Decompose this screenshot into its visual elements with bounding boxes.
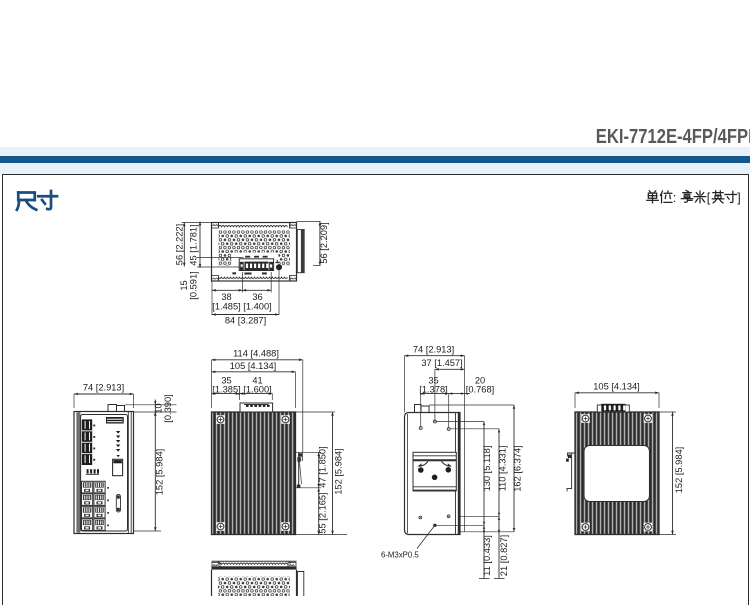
svg-text:[1.600]: [1.600]	[243, 384, 271, 394]
svg-text:[1.378]: [1.378]	[419, 384, 447, 394]
svg-text:37 [1.457]: 37 [1.457]	[421, 358, 462, 368]
svg-text:45 [1.781]: 45 [1.781]	[189, 224, 199, 265]
svg-text::: :	[673, 191, 676, 205]
svg-text:114 [4.488]: 114 [4.488]	[233, 349, 279, 359]
svg-text:55 [2.165]: 55 [2.165]	[317, 492, 327, 533]
svg-text:[1.400]: [1.400]	[243, 302, 271, 312]
svg-text:]: ]	[737, 191, 740, 205]
svg-text:74 [2.913]: 74 [2.913]	[83, 382, 124, 392]
svg-text:[1.385]: [1.385]	[212, 384, 240, 394]
svg-text:152 [5.984]: 152 [5.984]	[155, 449, 165, 496]
svg-text:105 [4.134]: 105 [4.134]	[230, 361, 277, 371]
svg-text:[0.591]: [0.591]	[189, 271, 199, 299]
svg-text:6-M3xP0.5: 6-M3xP0.5	[381, 551, 419, 560]
svg-text:152 [5.984]: 152 [5.984]	[334, 448, 344, 495]
svg-text:84 [3.287]: 84 [3.287]	[225, 316, 266, 326]
svg-text:[0.768]: [0.768]	[466, 384, 494, 394]
svg-text:152 [5.984]: 152 [5.984]	[674, 447, 684, 494]
svg-text:11 [0.433]: 11 [0.433]	[482, 535, 492, 576]
svg-text:74 [2.913]: 74 [2.913]	[413, 344, 454, 354]
svg-text:15: 15	[179, 280, 189, 290]
svg-text:56 [2.209]: 56 [2.209]	[319, 222, 329, 263]
svg-text:56 [2.222]: 56 [2.222]	[175, 224, 185, 265]
svg-text:[1.485]: [1.485]	[212, 302, 240, 312]
svg-text:21 [0.827]: 21 [0.827]	[499, 535, 509, 576]
svg-text:105 [4.134]: 105 [4.134]	[593, 381, 640, 391]
svg-text:47 [1.850]: 47 [1.850]	[317, 446, 327, 487]
svg-text:162 [6.374]: 162 [6.374]	[512, 445, 522, 492]
svg-text:130 [5.118]: 130 [5.118]	[482, 446, 492, 492]
svg-text:[0.390]: [0.390]	[163, 394, 173, 422]
svg-text:110 [4.331]: 110 [4.331]	[497, 446, 507, 492]
svg-text:[: [	[707, 191, 711, 205]
